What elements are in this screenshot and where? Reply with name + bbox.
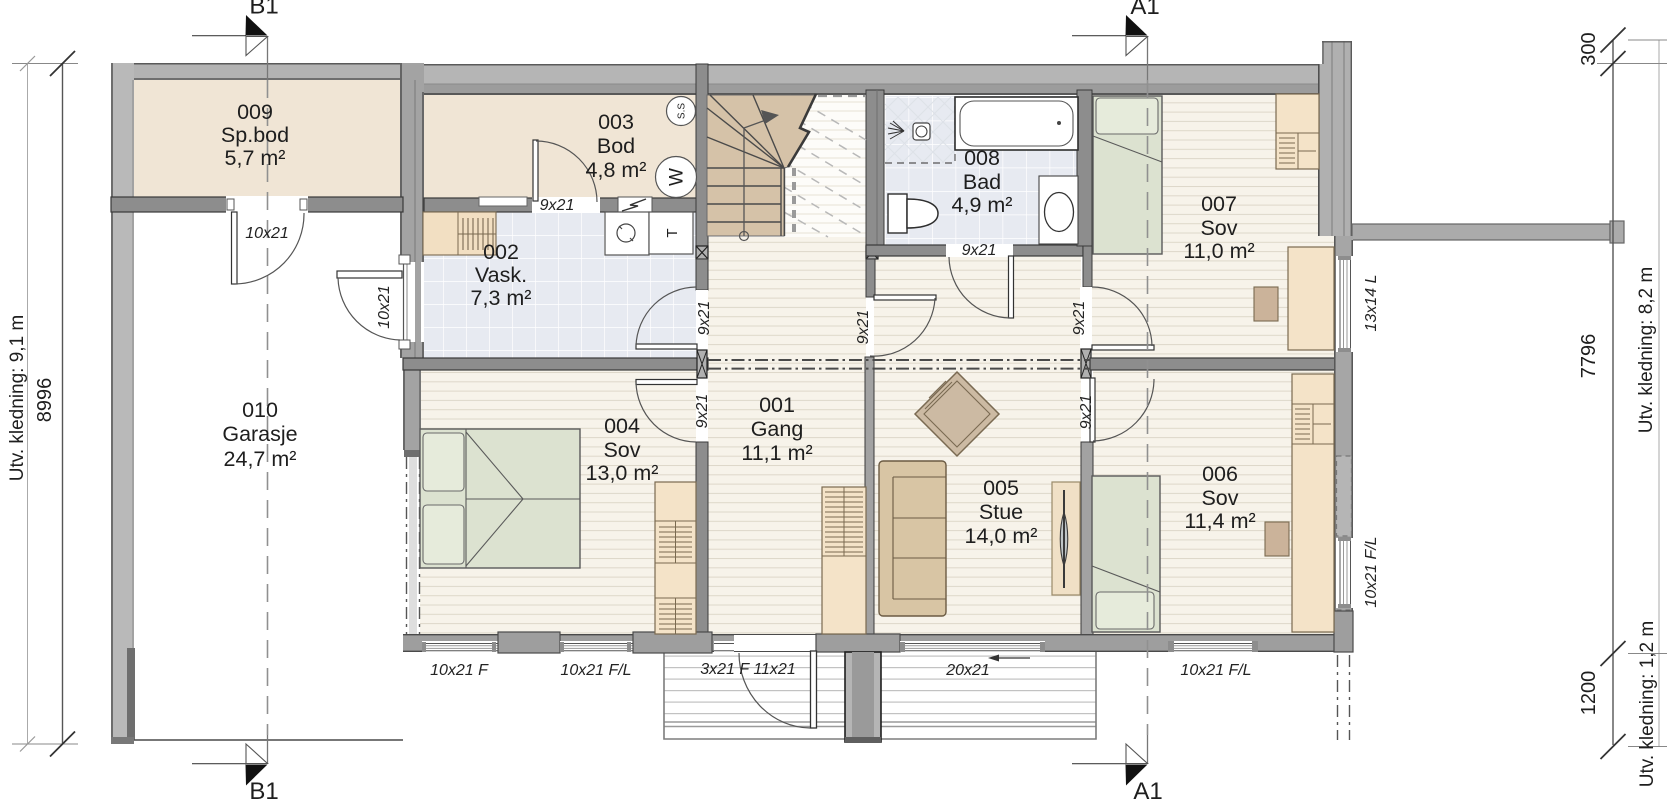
svg-text:Sov: Sov bbox=[603, 438, 640, 462]
svg-text:5,7 m²: 5,7 m² bbox=[225, 146, 286, 170]
svg-text:001: 001 bbox=[759, 393, 795, 417]
svg-text:300: 300 bbox=[1578, 32, 1600, 65]
svg-text:002: 002 bbox=[483, 240, 519, 264]
svg-text:10x21 F/L: 10x21 F/L bbox=[560, 662, 631, 679]
svg-text:9x21: 9x21 bbox=[694, 394, 711, 429]
svg-text:14,0 m²: 14,0 m² bbox=[965, 524, 1038, 548]
svg-text:13,0 m²: 13,0 m² bbox=[586, 461, 659, 485]
svg-text:13x14 L: 13x14 L bbox=[1363, 275, 1380, 332]
svg-text:9x21: 9x21 bbox=[1071, 301, 1088, 336]
svg-text:9x21: 9x21 bbox=[962, 242, 997, 259]
svg-text:Garasje: Garasje bbox=[222, 422, 297, 446]
svg-text:Sp.bod: Sp.bod bbox=[221, 123, 289, 147]
svg-text:10x21: 10x21 bbox=[376, 285, 393, 329]
svg-text:Bod: Bod bbox=[597, 134, 635, 158]
svg-text:S.S: S.S bbox=[677, 103, 688, 119]
svg-text:006: 006 bbox=[1202, 462, 1238, 486]
svg-text:007: 007 bbox=[1201, 192, 1237, 216]
svg-text:24,7 m²: 24,7 m² bbox=[224, 447, 297, 471]
svg-text:B1: B1 bbox=[249, 778, 278, 800]
svg-text:4,9 m²: 4,9 m² bbox=[952, 193, 1013, 217]
svg-text:005: 005 bbox=[983, 476, 1019, 500]
svg-text:20x21: 20x21 bbox=[945, 662, 990, 679]
svg-text:8996: 8996 bbox=[34, 378, 56, 423]
svg-text:T: T bbox=[664, 228, 681, 237]
svg-text:9x21: 9x21 bbox=[1078, 395, 1095, 430]
svg-text:A1: A1 bbox=[1130, 0, 1159, 20]
svg-text:9x21: 9x21 bbox=[696, 301, 713, 336]
svg-text:009: 009 bbox=[237, 100, 273, 124]
svg-text:Vask.: Vask. bbox=[475, 263, 527, 287]
svg-text:W: W bbox=[667, 168, 688, 186]
svg-text:4,8 m²: 4,8 m² bbox=[586, 158, 647, 182]
svg-text:10x21: 10x21 bbox=[245, 225, 289, 242]
svg-text:7796: 7796 bbox=[1578, 334, 1600, 379]
svg-text:Sov: Sov bbox=[1201, 486, 1238, 510]
svg-text:Utv. kledning: 8,2 m: Utv. kledning: 8,2 m bbox=[1636, 267, 1657, 434]
svg-text:004: 004 bbox=[604, 414, 640, 438]
svg-text:010: 010 bbox=[242, 398, 278, 422]
svg-text:B1: B1 bbox=[249, 0, 278, 20]
svg-text:10x21 F/L: 10x21 F/L bbox=[1363, 536, 1380, 607]
svg-text:9x21: 9x21 bbox=[540, 197, 575, 214]
svg-text:9x21: 9x21 bbox=[855, 310, 872, 345]
svg-text:Utv. kledning: 9,1 m: Utv. kledning: 9,1 m bbox=[7, 315, 28, 482]
svg-text:3x21 F 11x21: 3x21 F 11x21 bbox=[700, 661, 795, 678]
svg-text:10x21 F/L: 10x21 F/L bbox=[1180, 662, 1251, 679]
svg-text:Sov: Sov bbox=[1200, 216, 1237, 240]
svg-text:Gang: Gang bbox=[751, 417, 804, 441]
svg-text:11,0 m²: 11,0 m² bbox=[1183, 239, 1254, 263]
svg-text:Utv. kledning: 1,2 m: Utv. kledning: 1,2 m bbox=[1637, 621, 1658, 788]
svg-text:Bad: Bad bbox=[963, 170, 1001, 194]
svg-text:Stue: Stue bbox=[979, 500, 1023, 524]
svg-text:10x21 F: 10x21 F bbox=[430, 662, 489, 679]
svg-text:7,3 m²: 7,3 m² bbox=[471, 286, 532, 310]
svg-text:1200: 1200 bbox=[1578, 671, 1600, 716]
svg-text:003: 003 bbox=[598, 110, 634, 134]
svg-text:A1: A1 bbox=[1133, 778, 1162, 800]
svg-text:11,4 m²: 11,4 m² bbox=[1184, 509, 1255, 533]
svg-text:11,1 m²: 11,1 m² bbox=[741, 441, 812, 465]
svg-text:008: 008 bbox=[964, 146, 1000, 170]
